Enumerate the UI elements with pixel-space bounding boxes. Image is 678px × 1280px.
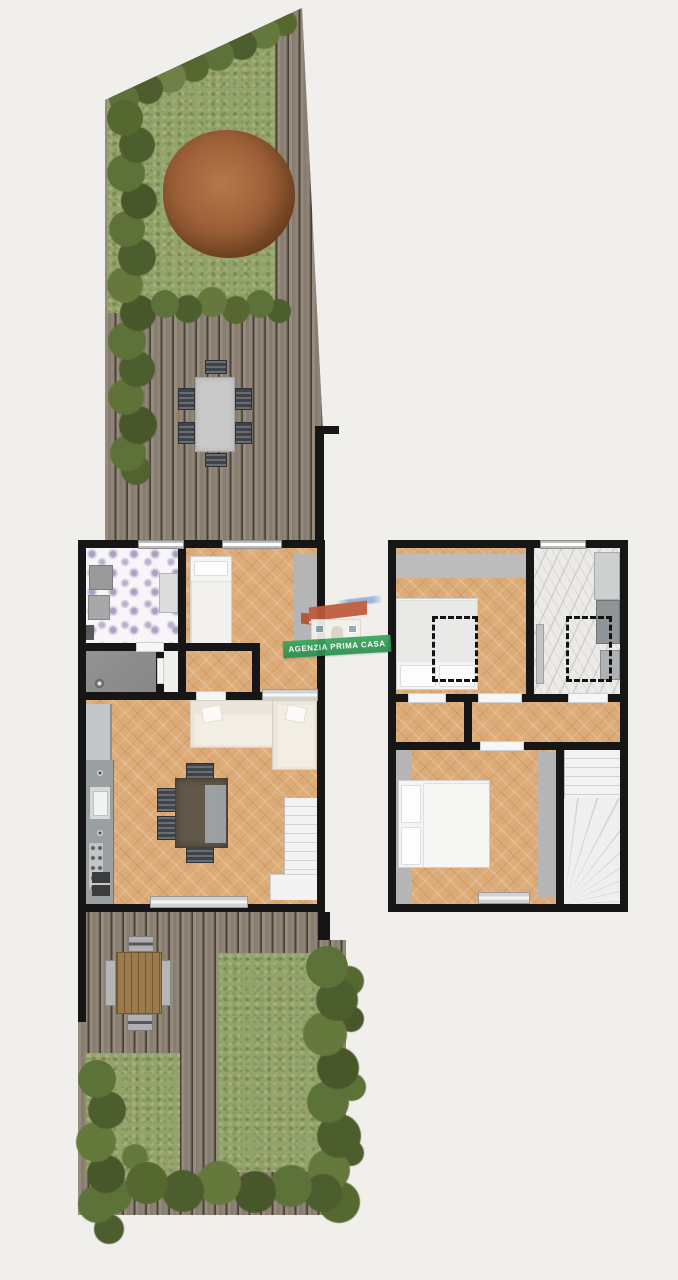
background-mask <box>330 912 346 940</box>
logo-banner: AGENZIA PRIMA CASA <box>283 635 392 659</box>
sink-basin <box>93 791 108 816</box>
wall-remnant-east <box>318 912 330 940</box>
oven <box>92 872 110 896</box>
kitchen-counter <box>86 704 112 760</box>
patio-table <box>195 377 235 452</box>
patio-table-wood <box>116 952 162 1014</box>
wall-bathroom-south <box>86 643 254 651</box>
shower2 <box>594 552 620 600</box>
pillow <box>194 561 228 576</box>
door-bathroom2 <box>568 693 608 703</box>
shower-tray <box>159 573 178 613</box>
logo-banner-text: AGENZIA PRIMA CASA <box>288 639 386 654</box>
patio-chair <box>205 360 227 374</box>
window-bathroom2-north <box>540 540 586 549</box>
skylight-bedroom2 <box>432 616 478 682</box>
wall-stairwell <box>556 750 564 904</box>
staircase-upper-treads <box>564 750 620 798</box>
patio-chair <box>178 388 195 410</box>
stair-landing <box>270 874 317 900</box>
sliding-door-garden-south <box>150 896 248 908</box>
dining-chair <box>157 788 176 812</box>
page: { "watermark": { "label": "AGENZIA PRIMA… <box>0 0 678 1280</box>
hallway-floor <box>186 651 252 692</box>
bedroom1-single-bed <box>190 556 232 644</box>
patio-chair <box>235 422 252 444</box>
door-bedroom3 <box>480 741 524 751</box>
wall-bathroom-east <box>178 548 186 692</box>
patio-chair <box>128 936 154 952</box>
wall-remnant-west <box>78 912 86 1022</box>
window-bathroom-north <box>138 540 184 549</box>
wall-hall-east <box>252 643 260 692</box>
dining-chair <box>186 847 214 863</box>
pillow <box>401 785 421 823</box>
outdoor-dining-north <box>175 356 265 471</box>
tree-column-west <box>78 1060 116 1098</box>
floor-drain-icon <box>95 679 104 688</box>
dining-chair <box>157 816 176 840</box>
patio-chair <box>178 422 195 444</box>
slider-bedroom3-south <box>478 892 530 904</box>
tree-row-south <box>126 1162 168 1204</box>
upper-floor-plan <box>388 540 628 912</box>
patio-chair <box>127 1014 153 1031</box>
patio-bench <box>105 960 116 1006</box>
dining-chair <box>186 763 214 779</box>
autumn-tree <box>163 130 295 258</box>
bathroom-sink-cabinet <box>88 595 110 620</box>
window-bedroom1-north <box>222 540 282 549</box>
knob-icon <box>97 830 103 836</box>
ground-floor-plan <box>78 540 325 912</box>
door-bedroom2 <box>478 693 522 703</box>
table-runner <box>205 785 226 843</box>
staircase-upper-winder <box>564 798 620 904</box>
garden-north <box>105 8 323 545</box>
dining-table <box>175 778 228 848</box>
south-lawn-east <box>218 953 322 1172</box>
logo-window <box>315 625 324 633</box>
hedge-left-column <box>107 100 143 136</box>
knob-icon <box>97 770 103 776</box>
wall-bed2-bath2 <box>526 548 534 702</box>
duvet <box>423 783 489 867</box>
washing-machine <box>89 565 113 590</box>
patio-chair <box>205 453 227 467</box>
pillow <box>400 665 436 687</box>
pillow <box>401 827 421 865</box>
boundary-wall-stub-vertical <box>315 426 324 544</box>
bush-row-mid <box>151 290 179 318</box>
toilet <box>86 625 94 640</box>
floorplan-canvas: AGENZIA PRIMA CASA <box>0 0 678 1280</box>
corridor-floor <box>396 702 620 742</box>
door-corridor-west <box>408 693 446 703</box>
door-bathroom <box>136 642 164 652</box>
skylight-bathroom2 <box>566 616 612 682</box>
kitchen-appliance-run <box>86 760 114 904</box>
bedroom2-wardrobe <box>396 554 526 578</box>
staircase-ground <box>284 798 317 874</box>
radiator2 <box>536 624 544 684</box>
bedroom3-wardrobe-east <box>538 752 556 898</box>
logo-window <box>348 625 357 633</box>
kitchen-sink <box>89 786 111 820</box>
tree-column-east <box>306 946 348 988</box>
garden-south <box>78 912 346 1215</box>
watermark-logo: AGENZIA PRIMA CASA <box>283 597 391 663</box>
patio-chair <box>235 388 252 410</box>
duvet <box>191 581 231 643</box>
sofa-cushion <box>201 704 223 723</box>
bedroom3-double-bed <box>398 780 490 868</box>
door-utility <box>157 658 164 684</box>
